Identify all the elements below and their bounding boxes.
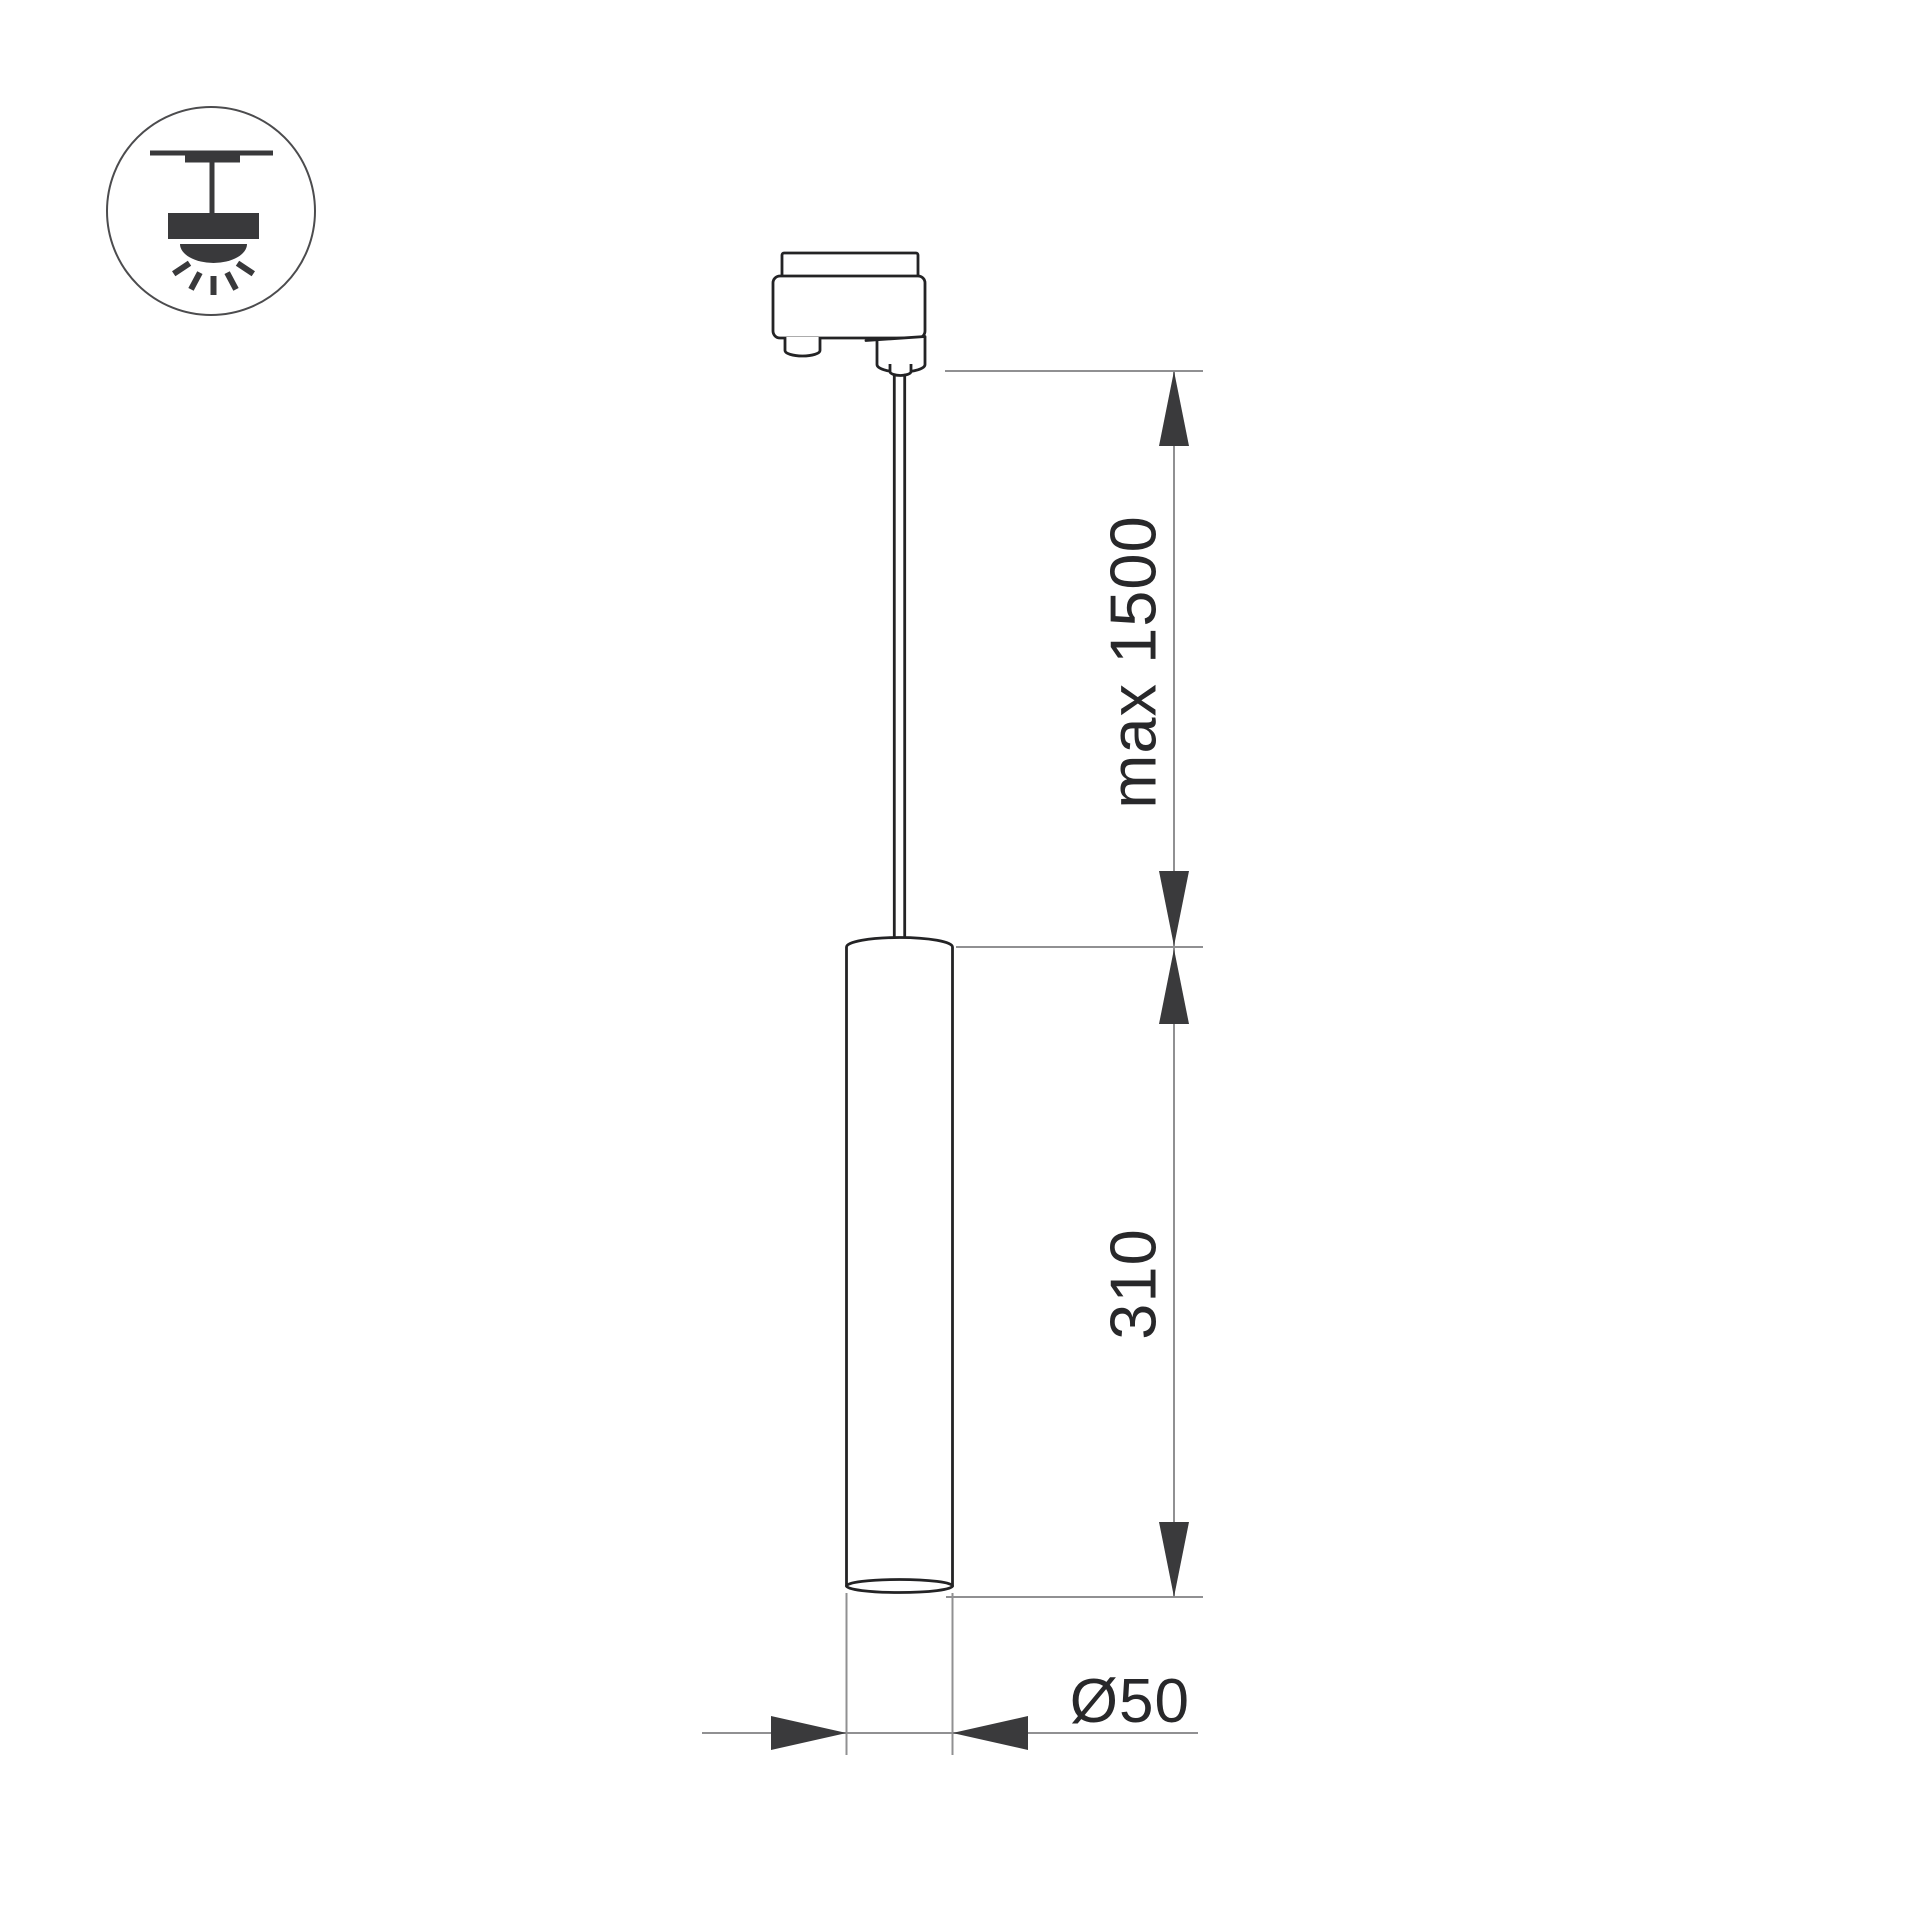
icon-light-ray [191, 273, 200, 290]
arrow-down-suspension-bottom [1159, 871, 1189, 946]
icon-light-ray [174, 263, 190, 274]
lamp-tube [847, 938, 953, 1593]
pendant-light-dimension-drawing: max 1500 310 Ø50 [0, 0, 1920, 1920]
lamp-tube-body [847, 938, 953, 1587]
icon-light-rays [174, 263, 254, 295]
tube-diameter-label: Ø50 [1070, 1667, 1190, 1736]
technical-drawing-canvas: max 1500 310 Ø50 [0, 0, 1920, 1920]
icon-lamp-body [168, 213, 259, 239]
arrow-down-tube-bottom [1159, 1522, 1189, 1597]
icon-lamp-dome [180, 244, 247, 263]
icon-suspension-stem [210, 162, 215, 214]
icon-track-bar [185, 156, 240, 163]
arrow-right-diameter-left [771, 1716, 847, 1750]
track-adapter [773, 253, 925, 376]
tube-length-label: 310 [1097, 1228, 1170, 1339]
suspension-wire [894, 375, 904, 944]
lamp-tube-bottom-rim [847, 1580, 953, 1593]
track-adapter-body [773, 276, 925, 338]
arrow-up-tube-top [1159, 949, 1189, 1024]
arrow-up-suspension-top [1159, 371, 1189, 446]
arrow-left-diameter-right [953, 1716, 1029, 1750]
icon-light-ray [238, 263, 254, 274]
icon-light-ray [227, 273, 236, 290]
ceiling-pendant-mount-icon [107, 107, 315, 315]
wire-gland-nub [890, 364, 911, 376]
track-adapter-lock-knob [785, 337, 820, 356]
icon-ceiling-line [150, 151, 273, 156]
suspension-length-label: max 1500 [1097, 515, 1170, 808]
track-adapter-tab [782, 253, 918, 278]
